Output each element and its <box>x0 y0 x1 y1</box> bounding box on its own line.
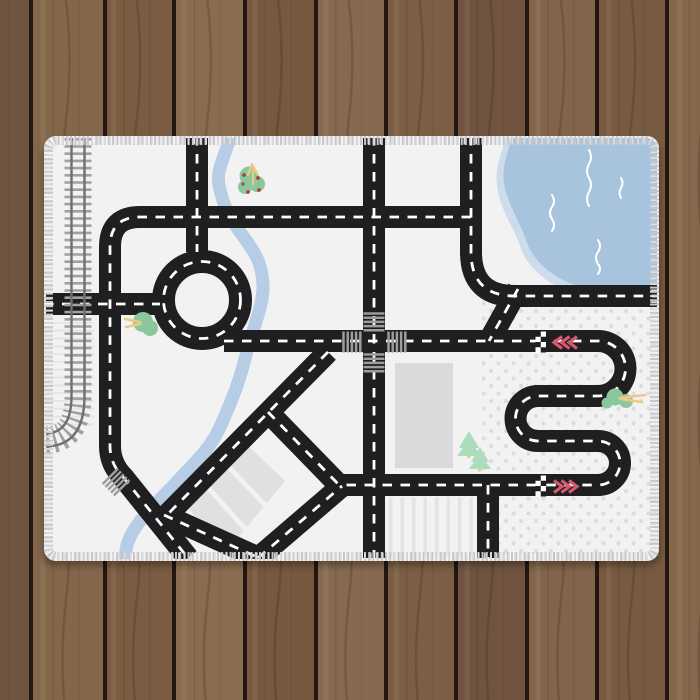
play-mat-scene <box>0 0 700 700</box>
building-block <box>395 363 453 468</box>
product-photo <box>0 0 700 700</box>
